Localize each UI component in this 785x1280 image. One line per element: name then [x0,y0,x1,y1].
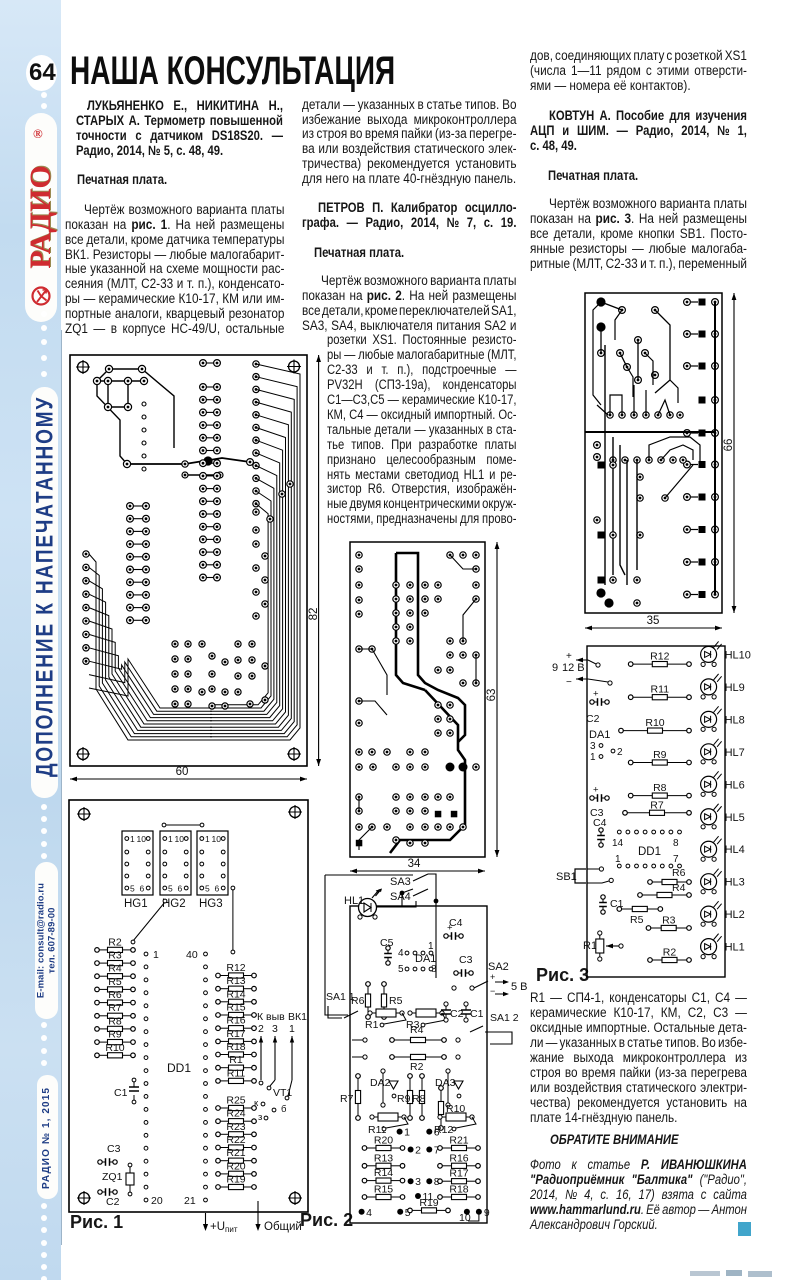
svg-text:60: 60 [176,766,189,778]
svg-text:R8: R8 [653,782,667,794]
svg-text:R5: R5 [389,995,403,1007]
svg-text:1: 1 [615,854,621,865]
svg-text:HL5: HL5 [725,812,745,824]
svg-text:R15: R15 [374,1184,393,1196]
svg-text:R10: R10 [105,1042,124,1054]
svg-text:5 В: 5 В [511,981,528,993]
svg-text:2: 2 [415,1145,421,1157]
svg-text:20: 20 [151,1195,163,1207]
svg-text:63: 63 [486,689,498,702]
svg-text:R9: R9 [108,1029,122,1041]
svg-text:R8: R8 [412,1093,426,1105]
svg-text:6: 6 [434,1127,440,1139]
svg-text:+: + [490,972,495,982]
svg-text:R16: R16 [226,1015,245,1027]
svg-text:R10: R10 [645,717,664,729]
svg-text:R25: R25 [226,1095,245,1107]
svg-text:R9: R9 [397,1093,411,1105]
svg-text:DD1: DD1 [638,846,661,858]
svg-text:6: 6 [215,884,220,894]
svg-text:HL9: HL9 [725,682,745,694]
svg-text:6: 6 [178,884,183,894]
svg-text:К выв: К выв [257,1011,285,1023]
svg-text:9: 9 [484,1207,490,1219]
svg-text:1: 1 [590,752,596,763]
svg-text:R17: R17 [226,1028,245,1040]
svg-text:9: 9 [552,662,558,674]
svg-text:Общий: Общий [264,1221,302,1233]
svg-text:R13: R13 [374,1152,393,1164]
svg-text:R7: R7 [340,1093,354,1105]
svg-text:ZQ1: ZQ1 [102,1171,123,1183]
svg-text:R2: R2 [410,1061,424,1073]
svg-text:10: 10 [212,834,222,844]
svg-text:SA1 1: SA1 1 [326,991,355,1003]
svg-text:R9: R9 [653,749,667,761]
svg-text:HL3: HL3 [725,877,745,889]
svg-text:R12: R12 [226,962,245,974]
svg-text:R4: R4 [108,963,122,975]
svg-text:R1: R1 [583,940,597,952]
svg-text:HL8: HL8 [725,714,745,726]
svg-text:14: 14 [612,838,624,849]
svg-text:C4: C4 [449,917,463,929]
svg-text:R15: R15 [226,1002,245,1014]
svg-text:R22: R22 [226,1134,245,1146]
svg-text:R5: R5 [630,914,644,926]
svg-text:R3: R3 [108,950,122,962]
svg-text:R2: R2 [108,936,122,948]
svg-text:HL1: HL1 [344,895,364,907]
svg-text:1: 1 [404,1127,410,1139]
svg-text:12 В: 12 В [562,662,585,674]
svg-text:R3: R3 [662,915,676,927]
svg-text:к: к [254,1098,259,1109]
svg-text:R6: R6 [108,989,122,1001]
svg-text:R19: R19 [419,1197,438,1209]
svg-text:R19: R19 [226,1174,245,1186]
svg-text:1: 1 [428,941,434,952]
svg-text:R12: R12 [650,651,669,663]
svg-text:R20: R20 [374,1135,393,1147]
svg-text:R16: R16 [449,1152,468,1164]
svg-text:R11: R11 [227,1067,246,1079]
svg-text:SA3: SA3 [390,876,411,888]
svg-text:40: 40 [186,949,198,961]
svg-text:R18: R18 [226,1041,245,1053]
svg-text:R8: R8 [108,1015,122,1027]
svg-text:R7: R7 [108,1002,122,1014]
svg-text:HL7: HL7 [725,747,745,759]
svg-text:+: + [593,689,599,700]
svg-text:HL6: HL6 [725,779,745,791]
svg-text:3: 3 [590,741,596,752]
svg-text:DA1: DA1 [589,729,610,741]
svg-text:R1: R1 [229,1054,243,1066]
svg-text:DA3: DA3 [435,1077,456,1089]
svg-text:10: 10 [175,834,185,844]
svg-text:HL4: HL4 [725,844,745,856]
svg-text:з: з [258,1112,262,1123]
svg-text:R11: R11 [651,684,670,696]
svg-text:VT1: VT1 [273,1087,292,1099]
svg-text:8: 8 [673,838,679,849]
svg-text:C2: C2 [586,713,600,725]
svg-text:R21: R21 [226,1147,245,1159]
svg-text:HG1: HG1 [124,898,148,910]
svg-text:82: 82 [308,608,320,621]
svg-text:5: 5 [205,884,210,894]
svg-text:R20: R20 [226,1160,245,1172]
svg-text:HL10: HL10 [725,649,751,661]
svg-text:C2: C2 [106,1196,120,1208]
svg-text:1: 1 [289,1023,295,1035]
svg-text:−: − [566,677,572,688]
svg-text:HL2: HL2 [725,909,745,921]
svg-text:3: 3 [272,1023,278,1035]
svg-text:R21: R21 [449,1135,468,1147]
svg-text:6: 6 [140,884,145,894]
svg-text:R7: R7 [650,799,664,811]
svg-text:C3: C3 [459,954,473,966]
svg-text:R6: R6 [672,867,686,879]
svg-text:21: 21 [184,1195,196,1207]
svg-text:R4: R4 [410,1024,424,1036]
svg-text:4: 4 [398,948,404,959]
svg-text:HL1: HL1 [725,942,745,954]
svg-text:1: 1 [153,949,159,961]
svg-text:5: 5 [398,964,404,975]
svg-text:2: 2 [258,1023,264,1035]
svg-text:R24: R24 [226,1108,245,1120]
svg-text:66: 66 [723,439,735,452]
svg-text:C3: C3 [107,1143,121,1155]
svg-text:3: 3 [415,1176,421,1188]
svg-text:35: 35 [647,615,660,627]
svg-text:1: 1 [168,834,173,844]
svg-text:R13: R13 [226,975,245,987]
svg-text:ВК1: ВК1 [288,1011,307,1023]
svg-text:R14: R14 [374,1167,393,1179]
svg-text:SA1 2: SA1 2 [490,1012,519,1024]
svg-text:2: 2 [617,747,623,758]
svg-text:+: + [593,785,599,796]
svg-text:1: 1 [130,834,135,844]
svg-text:R17: R17 [449,1168,468,1180]
svg-text:C4: C4 [593,817,607,829]
svg-text:R1: R1 [365,1019,379,1031]
svg-text:1: 1 [205,834,210,844]
svg-text:R23: R23 [226,1121,245,1133]
svg-text:−: − [490,986,495,996]
svg-text:R18: R18 [449,1184,468,1196]
svg-text:R5: R5 [108,976,122,988]
svg-text:5: 5 [168,884,173,894]
svg-text:7: 7 [673,854,679,865]
svg-text:б: б [281,1104,287,1115]
svg-text:DA2: DA2 [370,1077,391,1089]
svg-text:+Uпит: +Uпит [210,1221,238,1234]
svg-text:R2: R2 [663,947,677,959]
svg-text:R14: R14 [226,988,245,1000]
svg-text:10: 10 [137,834,147,844]
svg-text:4: 4 [366,1207,372,1219]
svg-text:+: + [566,651,572,662]
svg-text:SB1: SB1 [556,871,577,883]
svg-text:DD1: DD1 [167,1061,191,1075]
svg-text:C1: C1 [470,1008,484,1020]
svg-text:C1: C1 [114,1087,128,1099]
svg-text:R4: R4 [672,882,686,894]
svg-text:5: 5 [130,884,135,894]
svg-text:HG3: HG3 [199,898,223,910]
